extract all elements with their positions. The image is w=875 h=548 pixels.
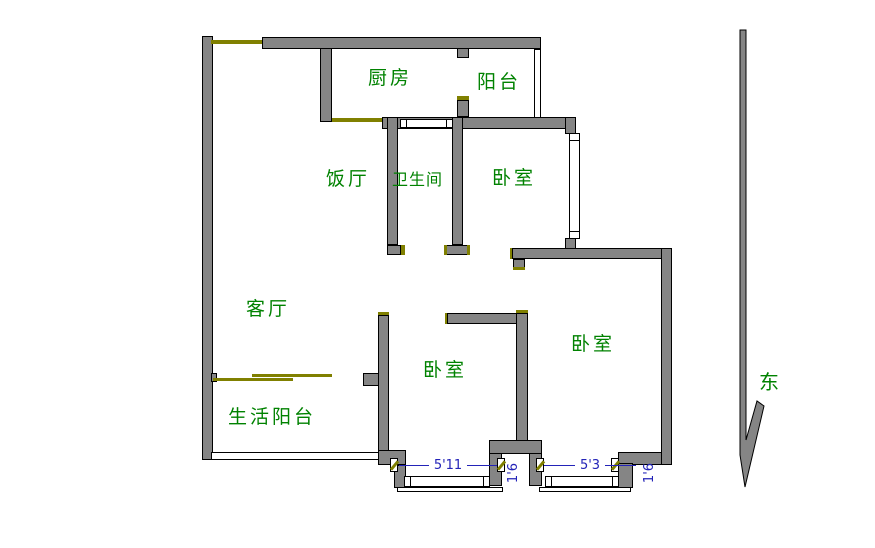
dimension-jamb-cap: [390, 458, 398, 472]
wall: [262, 37, 541, 49]
room-label-bedroom-middle: 卧室: [423, 361, 467, 380]
room-label-service-balcony: 生活阳台: [228, 408, 316, 427]
dimension-window1-value: 5'11: [429, 459, 467, 472]
room-label-balcony: 阳台: [477, 73, 521, 92]
room-label-dining: 饭厅: [326, 170, 370, 189]
bedroom-right-window: [545, 476, 619, 487]
bedroom-middle-window: [404, 476, 490, 487]
wall: [202, 36, 213, 460]
door-jamb-marker: [401, 245, 405, 255]
dimension-window2: 5'3: [544, 458, 636, 472]
wall: [457, 48, 469, 58]
wall: [452, 117, 463, 245]
wall: [447, 313, 527, 324]
room-label-kitchen: 厨房: [368, 69, 412, 88]
dimension-pier1-value: 1'6: [507, 455, 521, 491]
wall: [363, 373, 379, 386]
window-sill: [397, 487, 503, 492]
dimension-pier2-value: 1'6: [643, 455, 657, 491]
balcony-rail-window: [534, 49, 541, 119]
wall: [565, 117, 576, 134]
door-opening-marker: [332, 118, 382, 122]
door-jamb-marker: [444, 245, 447, 255]
room-label-bedroom-right: 卧室: [571, 335, 615, 354]
bedroom-top-window: [569, 133, 580, 239]
room-label-bedroom-top: 卧室: [492, 169, 536, 188]
wall: [387, 245, 401, 255]
dimension-jamb-cap: [497, 458, 505, 472]
sliding-door-panel: [213, 378, 293, 381]
wall: [516, 313, 528, 441]
wall: [489, 440, 542, 454]
compass-east-label: 东: [759, 372, 782, 392]
wall: [457, 100, 469, 117]
east-arrow-icon: [725, 25, 775, 495]
wall: [661, 248, 672, 465]
wall: [512, 248, 672, 259]
wall: [378, 315, 389, 453]
door-opening-marker: [211, 40, 263, 44]
room-label-living-room: 客厅: [246, 300, 290, 319]
room-label-bathroom: 卫生间: [392, 172, 443, 188]
dimension-window2-value: 5'3: [575, 459, 605, 472]
door-jamb-marker: [513, 267, 525, 270]
door-jamb-marker: [467, 245, 470, 255]
dimension-window1: 5'11: [399, 458, 497, 472]
sliding-door-panel: [252, 374, 332, 377]
dimension-jamb-cap: [536, 458, 544, 472]
wall: [320, 48, 332, 122]
floor-plan: 5'11 1'6 5'3 1'6 厨房 阳台 饭厅 卫生间 卧室 客厅 生活阳台…: [0, 0, 875, 548]
service-balcony-window: [211, 452, 381, 460]
bathroom-window: [400, 119, 453, 128]
